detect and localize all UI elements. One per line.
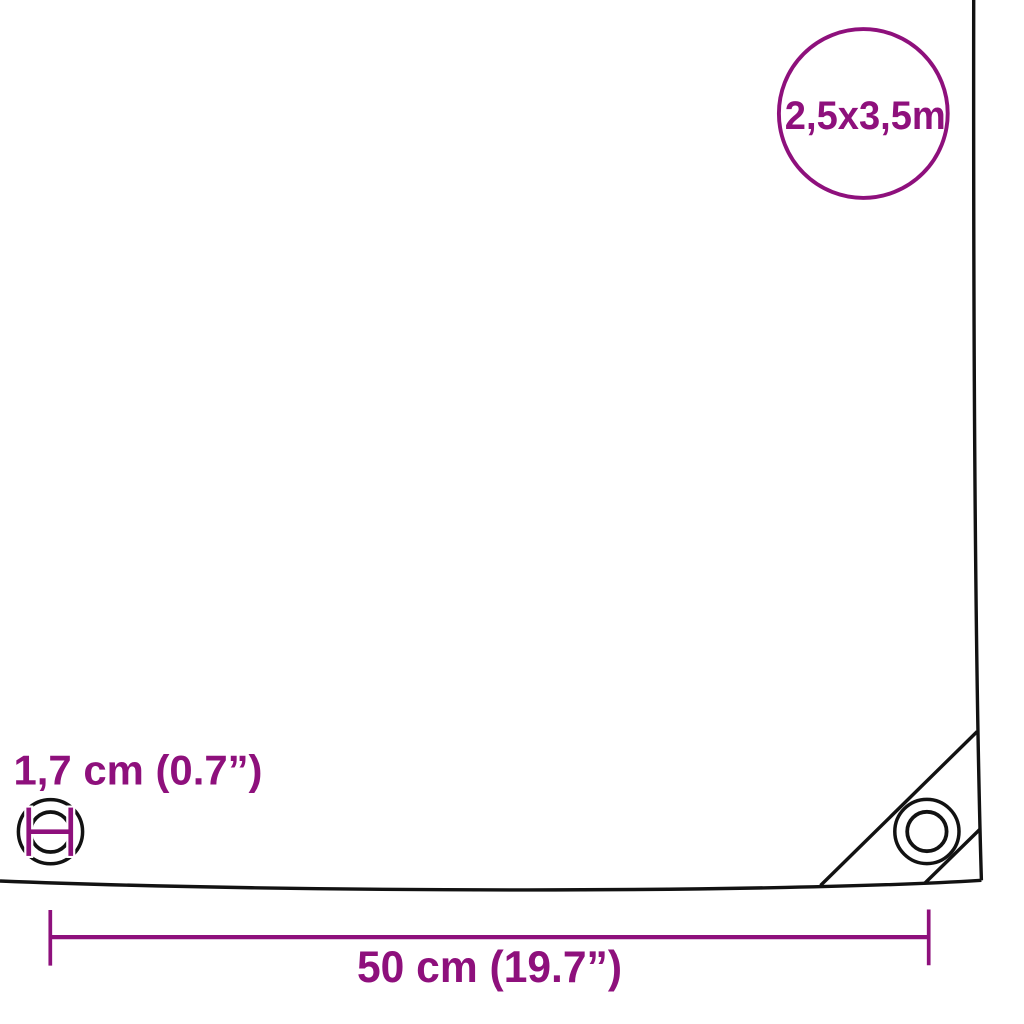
svg-text:1,7 cm (0.7”): 1,7 cm (0.7”)	[14, 747, 263, 794]
svg-text:2,5x3,5m: 2,5x3,5m	[785, 94, 946, 138]
svg-text:50 cm (19.7”): 50 cm (19.7”)	[357, 942, 622, 992]
